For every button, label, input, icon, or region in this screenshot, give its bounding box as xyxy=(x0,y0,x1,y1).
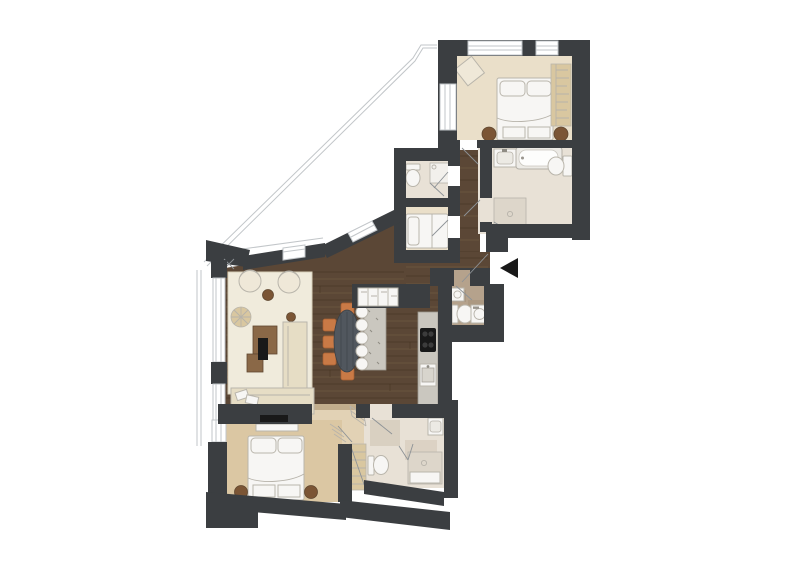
wall-pier xyxy=(211,260,227,278)
pillow xyxy=(251,438,276,453)
door-master-bedroom xyxy=(460,140,477,148)
side-table xyxy=(263,290,274,301)
toilet xyxy=(406,164,420,187)
kitchen-counter xyxy=(418,312,438,412)
bar-stools xyxy=(356,306,368,370)
entrance-arrow xyxy=(500,258,518,278)
wall-bedroom2-east xyxy=(338,444,352,502)
pillow xyxy=(408,217,419,245)
toilet xyxy=(368,456,389,476)
closet-unit: closet xyxy=(350,444,366,490)
shower-bench xyxy=(410,472,440,483)
pillow xyxy=(527,81,551,96)
side-table xyxy=(287,313,296,322)
toilet xyxy=(452,305,473,323)
pillow xyxy=(500,81,525,96)
wall-pier xyxy=(211,362,227,384)
door-small-bedroom xyxy=(448,216,460,238)
door-bathroom2 xyxy=(370,404,392,418)
armchair xyxy=(239,270,261,292)
wall-suite-south xyxy=(394,250,460,263)
vanity-sink xyxy=(494,149,516,167)
bed-foot xyxy=(253,485,275,497)
double-bed xyxy=(248,436,304,500)
window xyxy=(468,41,522,55)
sink xyxy=(428,418,443,435)
living-room-furniture xyxy=(228,270,314,414)
cooktop xyxy=(420,328,436,352)
wall-bottom-step xyxy=(206,506,258,528)
toilet xyxy=(548,156,572,176)
kitchen-sink xyxy=(420,364,436,386)
bed-foot xyxy=(528,127,550,138)
window xyxy=(283,245,305,260)
window xyxy=(213,278,225,362)
floor-plan: living / dining / kitchen hallway bedroo… xyxy=(0,0,800,566)
daybed xyxy=(283,322,307,390)
wall-bath-south xyxy=(486,224,572,238)
round-stool xyxy=(482,127,496,141)
wall-bathroom2-east xyxy=(444,400,458,498)
bed-foot xyxy=(503,127,525,138)
pillow xyxy=(278,438,302,453)
window xyxy=(536,41,558,55)
wall-east xyxy=(572,40,590,240)
round-stool xyxy=(554,127,568,141)
wardrobe xyxy=(551,64,571,126)
small-bedroom-furniture xyxy=(406,214,448,248)
single-bed xyxy=(406,214,448,248)
wall-entry-upper xyxy=(486,238,508,252)
pouf xyxy=(231,307,251,327)
armchair xyxy=(278,271,300,293)
door-wc-laundry xyxy=(454,270,470,286)
nightstand xyxy=(305,486,318,499)
wall-bottom-right xyxy=(340,500,450,530)
wall-suite-divider xyxy=(402,198,450,207)
door-shower-wc xyxy=(448,166,460,186)
small-sink xyxy=(451,288,464,301)
dining-chair xyxy=(323,319,336,331)
wall-wc-east xyxy=(484,284,504,342)
floor-plan-canvas: living / dining / kitchen hallway bedroo… xyxy=(0,0,800,566)
dining-chair xyxy=(323,353,336,365)
coffee-table-tray xyxy=(258,338,268,360)
tv xyxy=(260,415,288,422)
wall-kitchen-east xyxy=(438,286,452,416)
bed-foot xyxy=(278,485,300,497)
sideboard xyxy=(358,288,398,306)
door-master-bathroom xyxy=(480,198,492,222)
double-bed xyxy=(497,78,553,140)
dresser xyxy=(256,424,298,431)
window xyxy=(440,84,456,130)
